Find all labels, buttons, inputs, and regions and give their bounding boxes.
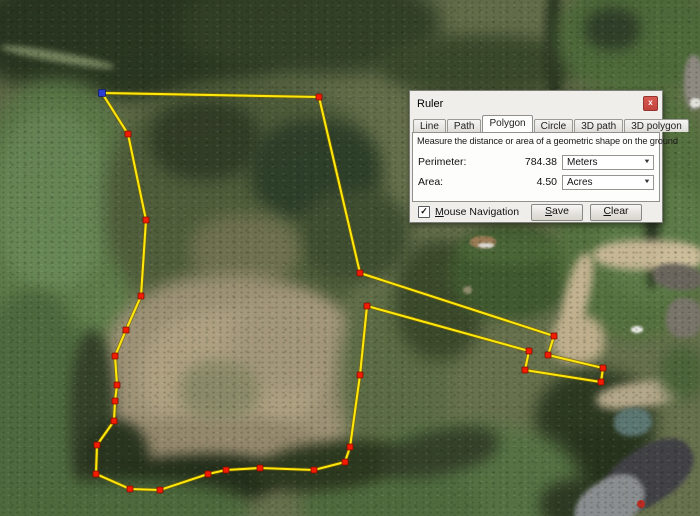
polygon-vertex[interactable] — [342, 459, 348, 465]
area-label: Area: — [418, 176, 443, 188]
polygon-vertex[interactable] — [600, 365, 606, 371]
polygon-vertex[interactable] — [364, 303, 370, 309]
polygon-vertex[interactable] — [93, 471, 99, 477]
ruler-dialog: Ruler x Line Path Polygon Circle 3D path… — [409, 90, 663, 223]
measurement-overlay — [0, 0, 700, 516]
dialog-title: Ruler — [417, 98, 443, 110]
polygon-vertex[interactable] — [94, 442, 100, 448]
perimeter-row: Perimeter: 784.38 Meters ▼ — [418, 154, 654, 170]
polygon-vertex[interactable] — [551, 333, 557, 339]
polygon-tab-panel: Measure the distance or area of a geomet… — [412, 132, 660, 202]
map-viewport[interactable] — [0, 0, 700, 516]
polygon-vertex[interactable] — [123, 327, 129, 333]
area-unit-value: Acres — [567, 177, 593, 188]
polygon-vertex[interactable] — [526, 348, 532, 354]
clear-button[interactable]: Clear — [590, 204, 642, 221]
tab-path[interactable]: Path — [447, 119, 482, 132]
tool-description: Measure the distance or area of a geomet… — [413, 133, 659, 146]
tab-3d-polygon[interactable]: 3D polygon — [624, 119, 689, 132]
polygon-vertex[interactable] — [522, 367, 528, 373]
polygon-vertex[interactable] — [223, 467, 229, 473]
dialog-footer: ✓ Mouse Navigation Save Clear — [410, 202, 662, 222]
perimeter-label: Perimeter: — [418, 156, 466, 168]
area-value: 4.50 — [537, 176, 557, 188]
google-earth-window: Ruler x Line Path Polygon Circle 3D path… — [0, 0, 700, 516]
perimeter-unit-value: Meters — [567, 157, 598, 168]
area-unit-select[interactable]: Acres ▼ — [562, 175, 654, 190]
area-row: Area: 4.50 Acres ▼ — [418, 174, 654, 190]
tab-circle[interactable]: Circle — [534, 119, 574, 132]
polygon-vertex[interactable] — [205, 471, 211, 477]
polygon-vertex[interactable] — [143, 217, 149, 223]
mouse-navigation-checkbox[interactable]: ✓ Mouse Navigation — [418, 206, 519, 218]
polygon-vertex[interactable] — [347, 444, 353, 450]
polygon-vertex[interactable] — [125, 131, 131, 137]
close-button[interactable]: x — [643, 96, 658, 111]
close-icon: x — [648, 98, 652, 107]
perimeter-value: 784.38 — [525, 156, 557, 168]
tab-3d-path[interactable]: 3D path — [574, 119, 623, 132]
polygon-vertex[interactable] — [545, 352, 551, 358]
polygon-vertex[interactable] — [316, 94, 322, 100]
polygon-vertex[interactable] — [598, 379, 604, 385]
polygon-vertex[interactable] — [157, 487, 163, 493]
perimeter-unit-select[interactable]: Meters ▼ — [562, 155, 654, 170]
polygon-vertex[interactable] — [357, 270, 363, 276]
mouse-navigation-label: Mouse Navigation — [435, 206, 519, 218]
tab-bar: Line Path Polygon Circle 3D path 3D poly… — [413, 118, 660, 132]
polygon-vertex[interactable] — [114, 382, 120, 388]
polygon-vertex[interactable] — [357, 372, 363, 378]
checkbox-check-icon: ✓ — [418, 206, 430, 218]
polygon-vertex[interactable] — [127, 486, 133, 492]
polygon-vertex[interactable] — [311, 467, 317, 473]
dialog-titlebar[interactable]: Ruler x — [410, 91, 662, 117]
polygon-vertex[interactable] — [111, 418, 117, 424]
save-button[interactable]: Save — [531, 204, 583, 221]
polygon-start-vertex[interactable] — [99, 90, 106, 97]
tab-line[interactable]: Line — [413, 119, 446, 132]
polygon-vertex[interactable] — [257, 465, 263, 471]
chevron-down-icon: ▼ — [643, 179, 651, 185]
polygon-vertex[interactable] — [112, 353, 118, 359]
chevron-down-icon: ▼ — [643, 159, 651, 165]
polygon-vertex[interactable] — [138, 293, 144, 299]
polygon-vertex[interactable] — [112, 398, 118, 404]
tab-polygon[interactable]: Polygon — [482, 115, 532, 132]
